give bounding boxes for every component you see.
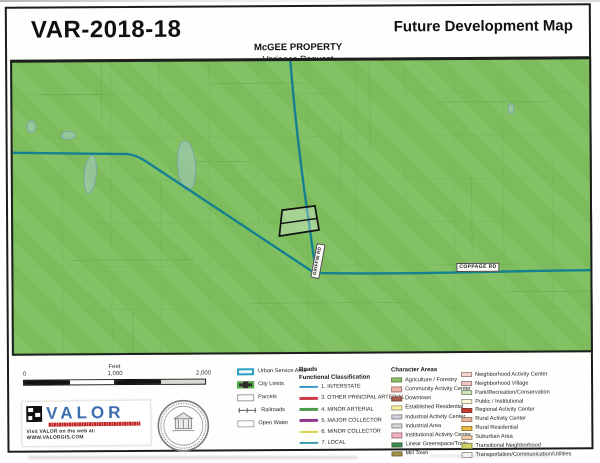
character-areas-title: Character Areas — [391, 367, 437, 373]
downtown-swatch — [391, 396, 402, 401]
transportation-communication-utilities-swatch — [462, 452, 473, 457]
park-recreation-conservation-swatch — [461, 390, 472, 395]
scale-tick-labels: 0 1,000 2,000 — [19, 371, 211, 372]
road-lines — [12, 59, 590, 275]
valor-wordmark: VALOR — [46, 404, 124, 422]
legend-item-institutional-activity-center: Institutional Activity Center — [391, 432, 471, 438]
legend-item-interstate: 1. INTERSTATE — [299, 384, 404, 391]
valor-tagline: Visit VALOR on the web at: WWW.VALORGIS.… — [26, 428, 146, 442]
interstate-line-swatch — [299, 386, 318, 389]
scale-tick-2000: 2,000 — [196, 371, 211, 377]
local-line-swatch — [299, 442, 318, 445]
major-collector-line-swatch — [299, 419, 318, 422]
institutional-activity-center-swatch — [391, 433, 402, 438]
rural-activity-center-swatch — [461, 417, 472, 422]
legend-item-parcels: Parcels — [237, 393, 307, 401]
legend-item-transportation-communication-utilities: Transportation/Communication/Utilities — [462, 451, 572, 457]
legend-item-city-limits: City Limits — [237, 380, 307, 388]
railroads-swatch — [237, 406, 257, 414]
agriculture-forestry-swatch — [391, 378, 402, 383]
legend-item-industrial-activity-center: Industrial Activity Center — [391, 414, 471, 420]
legend-item-suburban-area: Suburban Area — [461, 434, 571, 440]
legend-item-local: 7. LOCAL — [299, 439, 404, 446]
legend-roads: Roads Functional Classification 1. INTER… — [299, 365, 405, 446]
pond-shapes — [27, 104, 515, 194]
legend-boundaries: Urban Service Area City Limits Parcels R… — [237, 367, 307, 427]
legend-item-transitional-neighborhood: Transitional Neighborhood — [461, 442, 571, 448]
principal-arterial-line-swatch — [299, 397, 318, 400]
legend-item-major-collector: 5. MAJOR COLLECTOR — [299, 417, 404, 424]
established-residential-swatch — [391, 405, 402, 410]
road-griffin — [290, 59, 316, 272]
scan-artifact-top — [0, 0, 600, 2]
legend-item-linear-greenspace-trails: Linear Greenspace/Trails — [391, 441, 471, 447]
legend-item-public-institutional: Public / Institutional — [461, 398, 571, 404]
scale-bar-segment — [160, 380, 206, 384]
rural-residential-swatch — [461, 426, 472, 431]
legend-item-mill-town: Mill Town — [391, 450, 471, 456]
page-title: Future Development Map — [394, 17, 573, 35]
legend-item-other-principal-arterial: 3. OTHER PRINCIPAL ARTERIAL — [299, 395, 404, 402]
legend-item-open-water: Open Water — [237, 419, 307, 427]
neighborhood-activity-center-swatch — [461, 372, 472, 377]
city-limits-swatch — [237, 381, 254, 388]
urban-service-area-swatch — [237, 368, 254, 375]
legend-item-agriculture-forestry: Agriculture / Forestry — [391, 377, 471, 383]
valor-logo: VALOR Visit VALOR on the web at: WWW.VAL… — [21, 399, 152, 447]
legend-item-rural-residential: Rural Residential — [461, 425, 571, 431]
linear-greenspace-trails-swatch — [391, 442, 402, 447]
mill-town-swatch — [392, 451, 403, 456]
legend-item-downtown: Downtown — [391, 395, 471, 401]
scale-bar-segment — [24, 380, 69, 384]
road-coppage — [314, 270, 590, 274]
legend-item-urban-service-area: Urban Service Area — [237, 367, 307, 375]
legend-item-minor-collector: 6. MINOR COLLECTOR — [299, 428, 404, 435]
legend-item-community-activity-center: Community Activity Center — [391, 386, 471, 392]
case-number: VAR-2018-18 — [31, 16, 182, 45]
legend-item-neighborhood-village: Neighborhood Village — [461, 380, 571, 386]
minor-collector-line-swatch — [299, 431, 318, 434]
minor-arterial-line-swatch — [299, 408, 318, 411]
map-canvas: COPPAGE RD GRIFFIN RD — [10, 56, 593, 356]
scan-artifact-bottom — [28, 456, 358, 459]
legend-item-established-residential: Established Residential — [391, 405, 471, 411]
suburban-area-swatch — [461, 434, 472, 439]
road-label-coppage: COPPAGE RD — [456, 263, 499, 272]
county-seal — [156, 399, 210, 453]
scale-bar — [23, 379, 206, 386]
legend-item-rural-activity-center: Rural Activity Center — [461, 416, 571, 422]
legend-item-neighborhood-activity-center: Neighborhood Activity Center — [461, 371, 571, 377]
subject-parcel — [279, 206, 319, 236]
public-institutional-swatch — [461, 399, 472, 404]
scale-tick-1000: 1,000 — [19, 371, 211, 378]
character-areas-column-1: Agriculture / Forestry Community Activit… — [391, 377, 471, 457]
transitional-neighborhood-swatch — [461, 443, 472, 448]
community-activity-center-swatch — [391, 387, 402, 392]
parcels-swatch — [237, 394, 254, 401]
legend-item-regional-activity-center: Regional Activity Center — [461, 407, 571, 413]
legend-item-railroads: Railroads — [237, 406, 307, 414]
industrial-activity-center-swatch — [391, 414, 402, 419]
neighborhood-village-swatch — [461, 381, 472, 386]
map-sheet: VAR-2018-18 Future Development Map McGEE… — [5, 3, 594, 453]
legend-item-park-recreation-conservation: Park/Recreation/Conservation — [461, 389, 571, 395]
map-drawing — [12, 59, 591, 354]
scanned-map-page: VAR-2018-18 Future Development Map McGEE… — [0, 0, 600, 463]
roads-legend-subtitle: Functional Classification — [299, 373, 404, 382]
open-water-swatch — [237, 420, 254, 427]
regional-activity-center-swatch — [461, 408, 472, 413]
scale-bar-segment — [115, 380, 160, 384]
legend-item-industrial-area: Industrial Area — [391, 423, 471, 429]
industrial-area-swatch — [391, 424, 402, 429]
scale-bar-segment — [69, 380, 116, 384]
road-west — [12, 151, 314, 275]
scale-unit-label: Feet — [23, 364, 206, 371]
valor-mark-icon — [26, 405, 42, 421]
character-areas-column-2: Neighborhood Activity Center Neighborhoo… — [461, 371, 571, 457]
legend-item-minor-arterial: 4. MINOR ARTERIAL — [299, 406, 404, 413]
